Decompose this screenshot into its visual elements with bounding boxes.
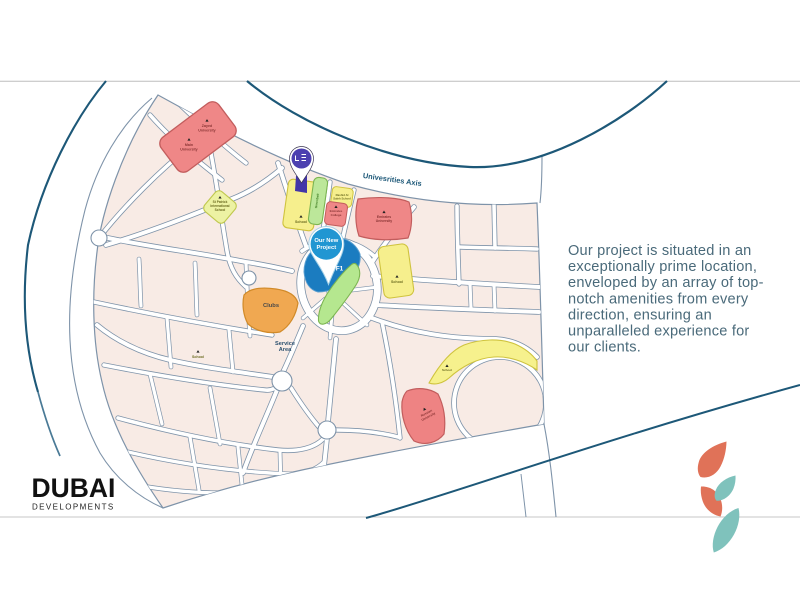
svg-text:enveloped by an array of top-: enveloped by an array of top- [568, 275, 764, 291]
svg-text:School: School [442, 368, 452, 372]
svg-text:Our New: Our New [314, 238, 338, 244]
svg-text:School: School [215, 208, 226, 212]
svg-text:Univesrities Axis: Univesrities Axis [362, 171, 422, 188]
svg-text:direction, ensuring an: direction, ensuring an [568, 307, 712, 323]
svg-text:Main: Main [185, 143, 193, 147]
svg-text:DEVELOPMENTS: DEVELOPMENTS [32, 503, 115, 512]
svg-text:University: University [376, 219, 393, 223]
svg-text:School: School [391, 280, 403, 284]
svg-text:College: College [331, 213, 342, 217]
svg-text:exceptionally prime location,: exceptionally prime location, [568, 259, 757, 275]
svg-text:Zayed: Zayed [202, 124, 212, 128]
svg-text:unparalleled experience for: unparalleled experience for [568, 324, 749, 340]
svg-text:Clubs: Clubs [263, 303, 279, 309]
svg-text:F1: F1 [336, 266, 344, 273]
svg-text:Saleh School: Saleh School [333, 197, 351, 201]
svg-text:our clients.: our clients. [568, 340, 641, 356]
svg-text:School: School [295, 220, 307, 224]
svg-text:Our project is situated in an: Our project is situated in an [568, 243, 751, 259]
svg-text:Project: Project [316, 245, 336, 251]
svg-text:Area: Area [279, 347, 292, 353]
svg-text:DUBAI: DUBAI [32, 473, 116, 503]
svg-text:notch amenities from every: notch amenities from every [568, 291, 749, 307]
svg-text:School: School [192, 355, 204, 359]
svg-text:University: University [198, 128, 215, 132]
svg-text:University: University [180, 147, 197, 151]
